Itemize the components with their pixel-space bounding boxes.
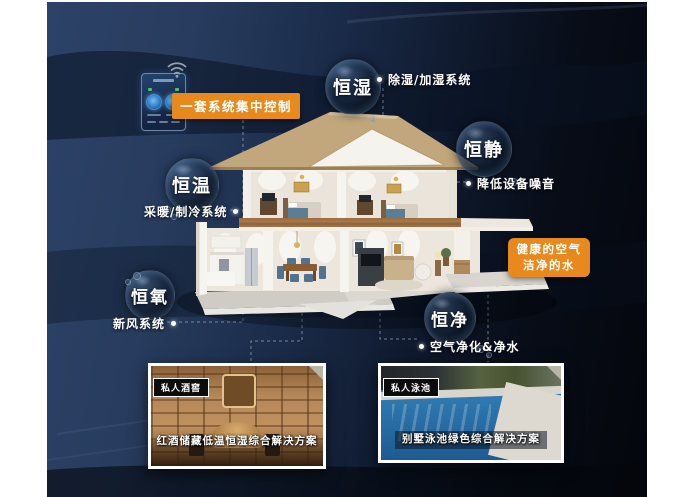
photo-corner-fold (309, 366, 323, 380)
central-control-label: 一套系统集中控制 (172, 93, 300, 119)
connector-purity (380, 295, 419, 339)
pool-photo: 私人泳池 别墅泳池绿色综合解决方案 (378, 363, 564, 463)
pool-caption: 别墅泳池绿色综合解决方案 (381, 431, 561, 446)
device-header (153, 79, 174, 82)
bubble-quiet-label: 恒静 (464, 136, 504, 162)
photo-corner-fold (547, 366, 561, 380)
wifi-icon (166, 60, 188, 78)
line-dot (171, 321, 176, 326)
bubble-oxygen-label: 恒氧 (131, 283, 169, 308)
line-dot (466, 181, 471, 186)
wine-cellar-photo: 私人酒窖 红酒储藏低温恒湿综合解决方案 (148, 363, 326, 469)
bubble-humidity: 恒湿 (325, 59, 381, 115)
bubble-quiet: 恒静 (456, 121, 512, 177)
device-knob (146, 94, 162, 110)
house-roof (210, 112, 478, 170)
label-temperature-system: 采暖/制冷系统 (144, 203, 238, 220)
line-dot (233, 209, 238, 214)
wine-cellar-caption: 红酒储藏低温恒湿综合解决方案 (151, 433, 323, 448)
pool-tag: 私人泳池 (383, 378, 439, 397)
label-humidity-system: 除湿/加湿系统 (377, 71, 471, 88)
line-dot (419, 344, 424, 349)
mini-bubble (125, 279, 131, 285)
label-purity-system: 空气净化&净水 (419, 338, 519, 355)
label-quiet-system: 降低设备噪音 (466, 175, 555, 192)
bubble-humidity-label: 恒湿 (333, 74, 373, 100)
device-led (148, 88, 152, 91)
house-lower-floor (196, 222, 480, 296)
highlight-line2: 洁净的水 (510, 258, 588, 274)
highlight-box: 健康的空气 洁净的水 (508, 238, 590, 277)
poster: 一套系统集中控制 恒湿 恒静 恒温 恒氧 恒净 除湿/加湿系统 (0, 0, 700, 497)
line-dot (377, 77, 382, 82)
poster-canvas: 一套系统集中控制 恒湿 恒静 恒温 恒氧 恒净 除湿/加湿系统 (47, 2, 647, 497)
mini-bubble (133, 272, 141, 280)
house-ground-shadow (177, 275, 557, 329)
bubble-purity: 恒净 (424, 292, 476, 344)
mini-bubble (369, 116, 376, 123)
label-oxygen-system: 新风系统 (113, 315, 176, 332)
connector-wine-photo (251, 295, 302, 364)
highlight-line1: 健康的空气 (510, 242, 588, 258)
device-led (175, 88, 179, 91)
bubble-purity-label: 恒净 (431, 306, 469, 331)
bubble-temperature-label: 恒温 (172, 172, 212, 198)
wine-cellar-tag: 私人酒窖 (153, 378, 209, 397)
